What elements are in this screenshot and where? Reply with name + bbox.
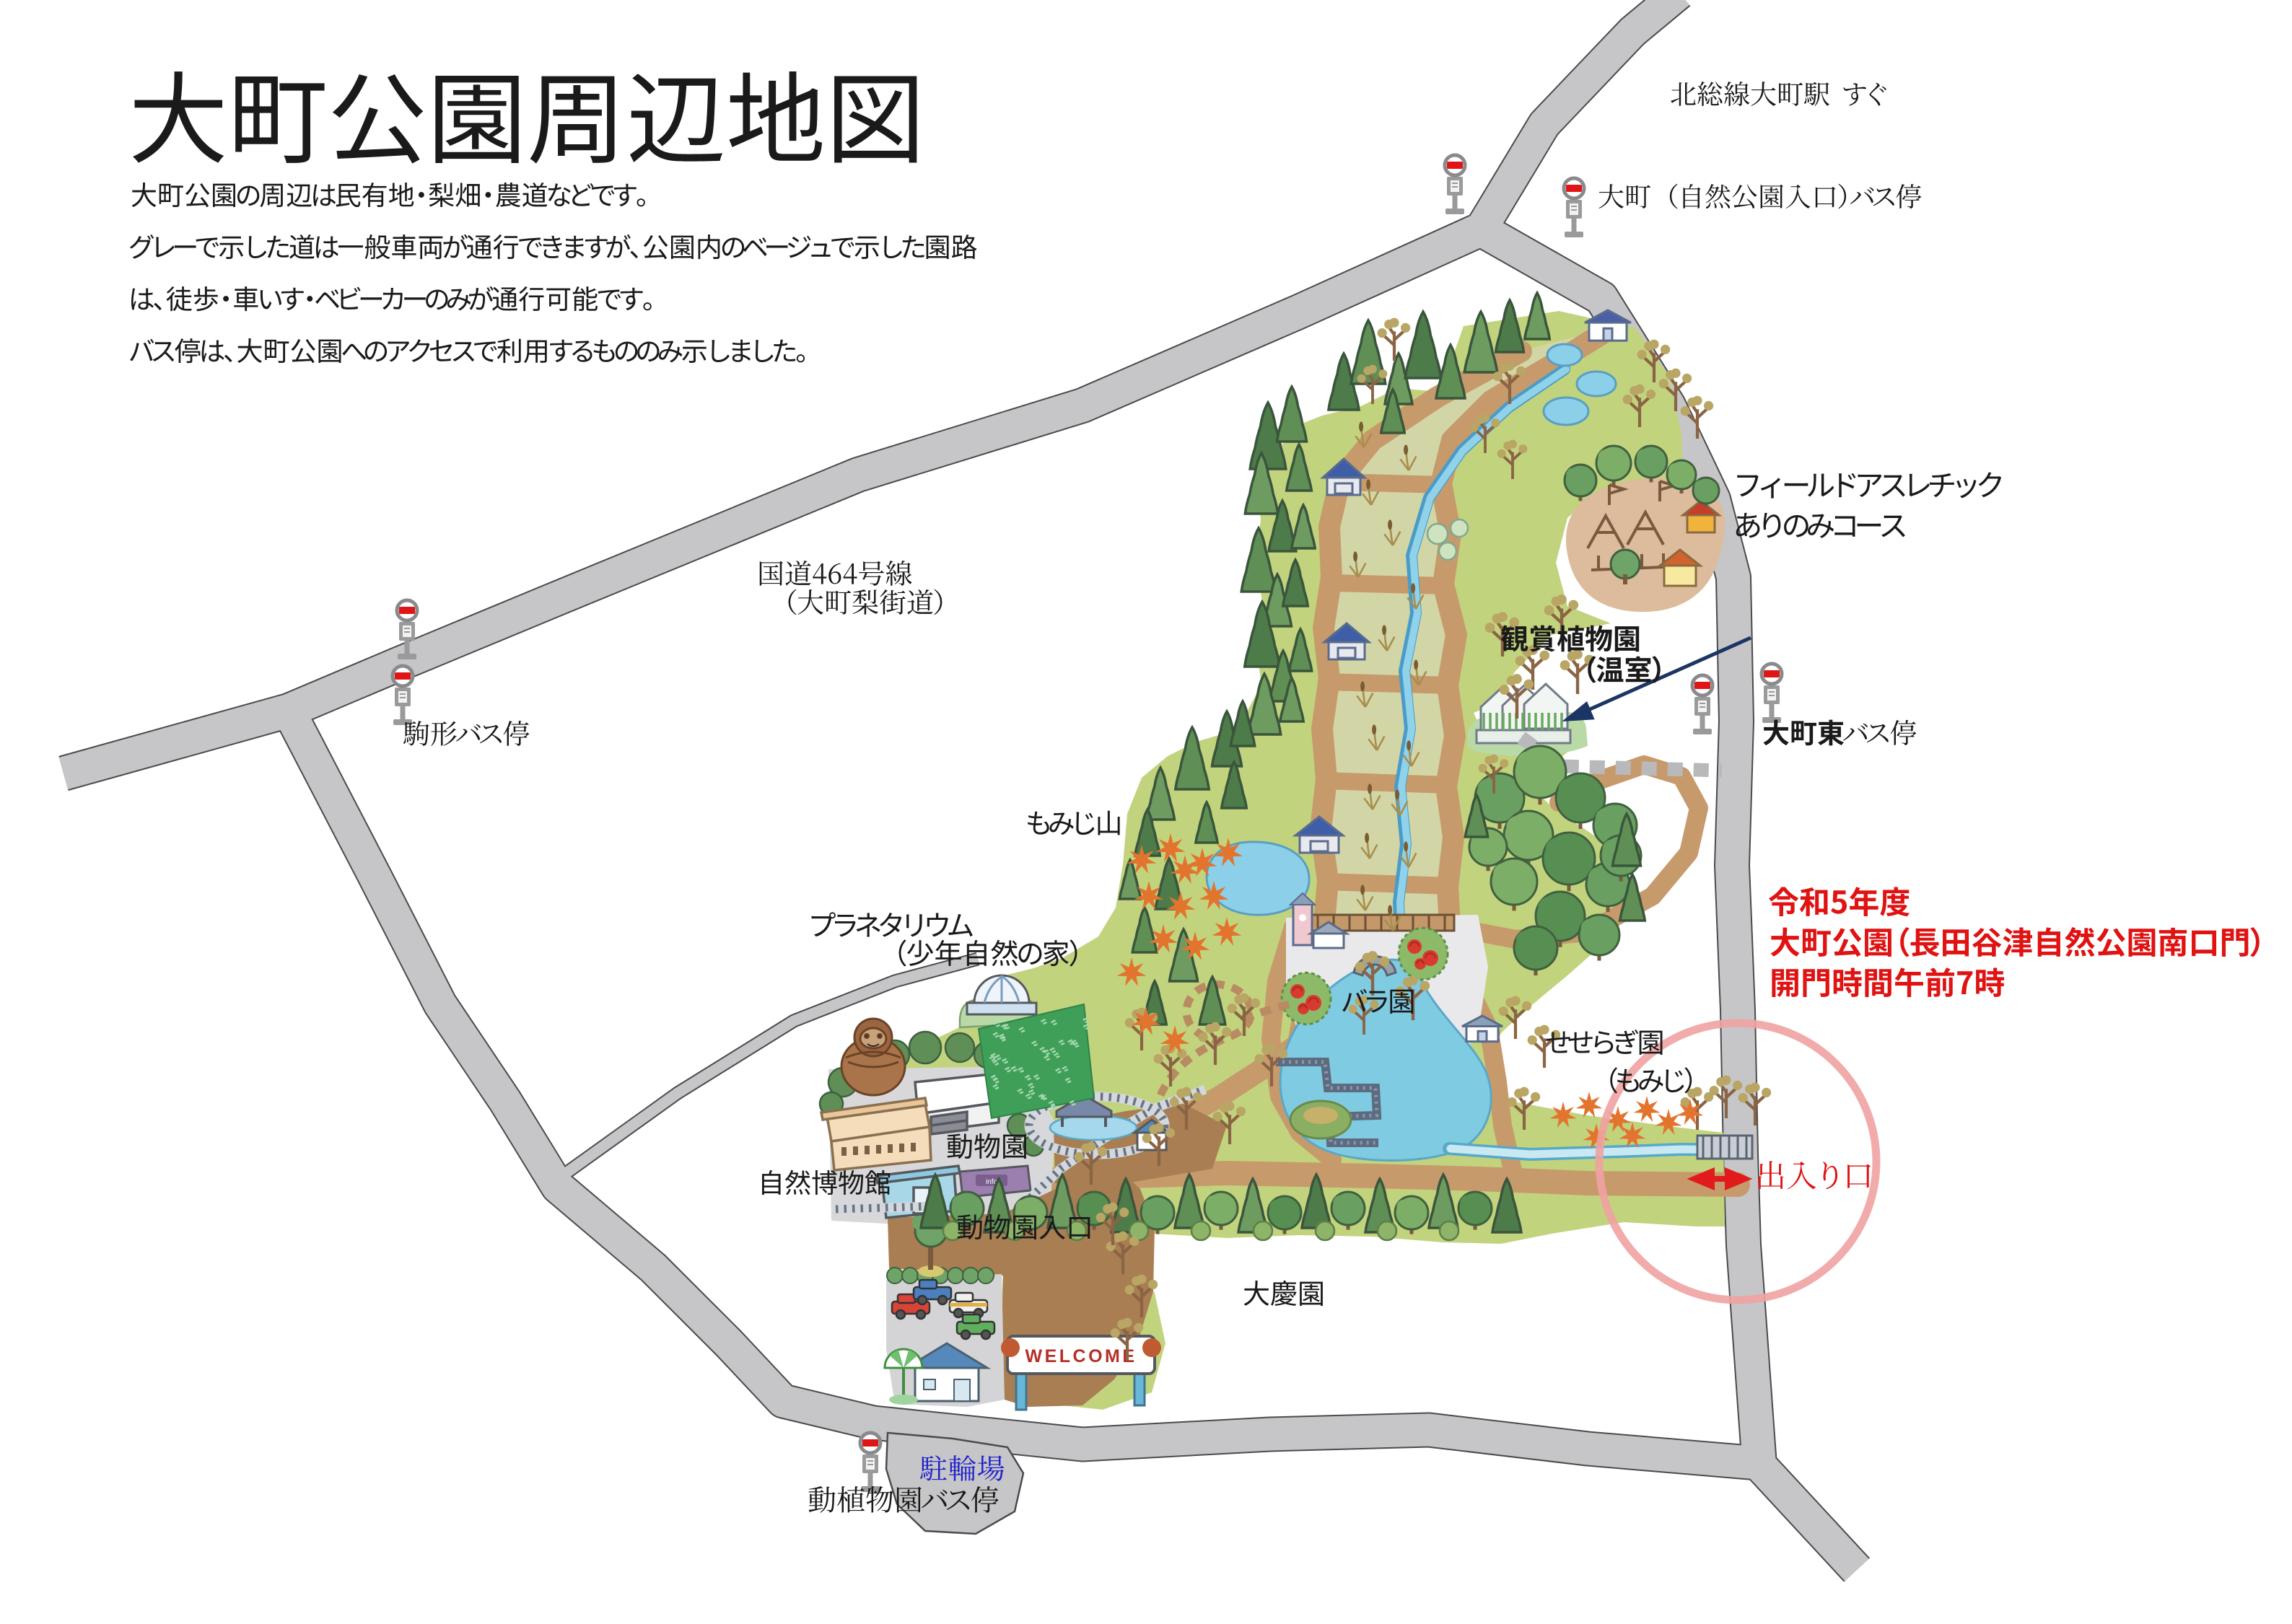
svg-text:WELCOME: WELCOME bbox=[1025, 1346, 1137, 1366]
